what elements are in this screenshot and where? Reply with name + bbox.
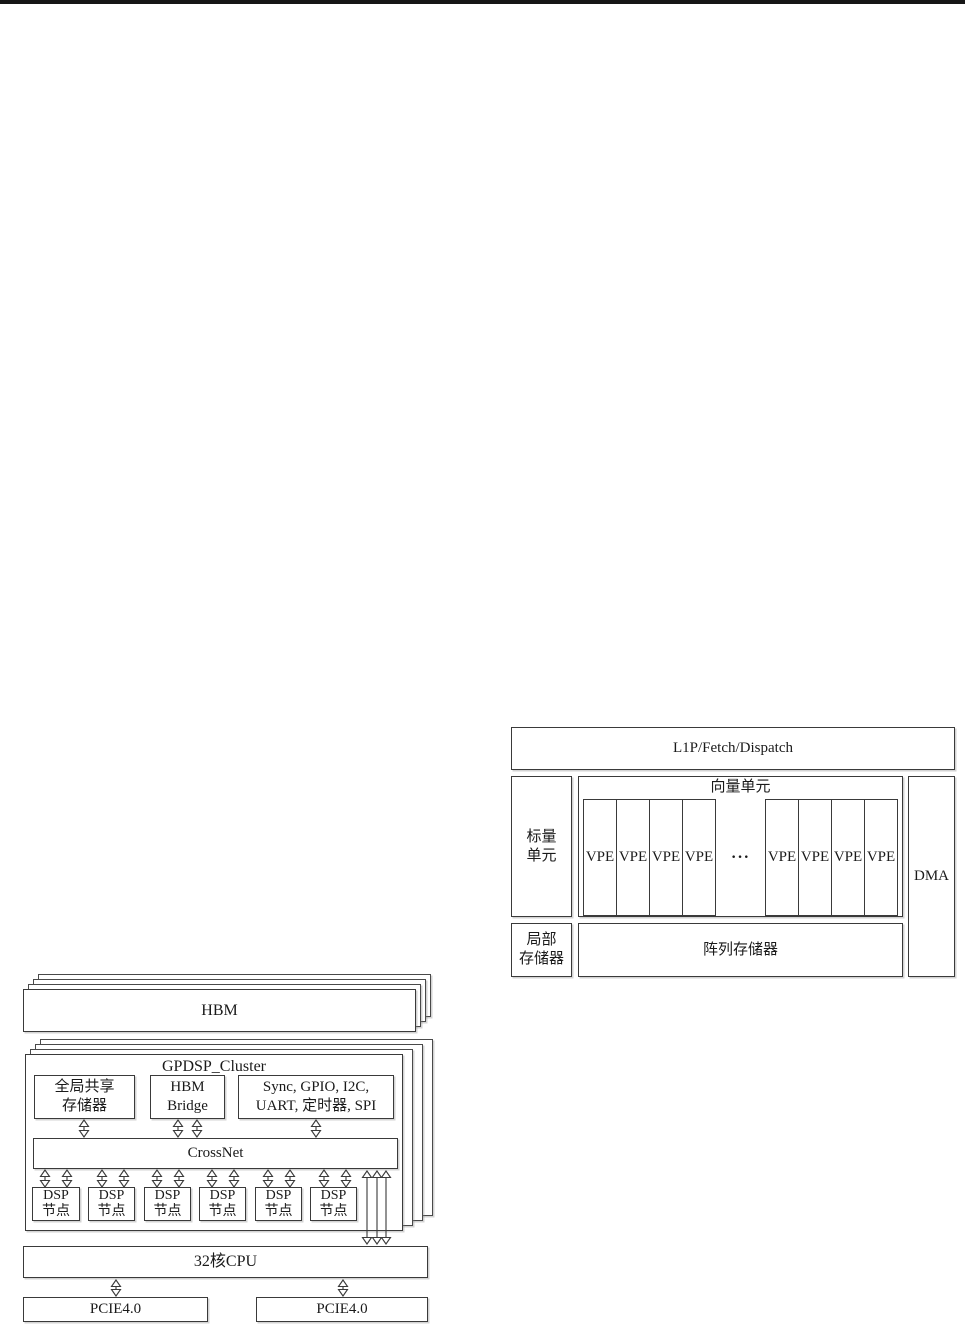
dma-label: DMA	[914, 867, 949, 886]
dsp-node-box: DSP 节点	[255, 1187, 302, 1221]
l1p-label: L1P/Fetch/Dispatch	[673, 739, 793, 758]
local-memory-label-line1: 局部	[526, 931, 556, 950]
hbm-label: HBM	[201, 1001, 237, 1021]
dsp-node-box: DSP 节点	[88, 1187, 135, 1221]
crossnet-box: CrossNet	[33, 1138, 398, 1169]
cpu-box: 32核CPU	[23, 1246, 428, 1278]
vpe-box: VPE	[798, 799, 832, 916]
dsp-node-line1: DSP	[99, 1188, 125, 1204]
hbm-bridge-line1: HBM	[170, 1078, 204, 1097]
scalar-unit-label-line1: 标量	[526, 828, 556, 847]
crossnet-label: CrossNet	[188, 1144, 244, 1163]
dsp-node-line1: DSP	[321, 1188, 347, 1204]
dsp-node-line2: 节点	[265, 1204, 293, 1220]
top-border-bar	[0, 0, 965, 4]
pcie-right-label: PCIE4.0	[316, 1300, 367, 1319]
vpe-group-right: VPE VPE VPE VPE	[765, 799, 898, 916]
dsp-node-line2: 节点	[154, 1204, 182, 1220]
hbm-box: HBM	[23, 989, 416, 1032]
vpe-label: VPE	[685, 849, 713, 866]
vpe-ellipsis: ···	[716, 799, 765, 916]
vpe-label: VPE	[619, 849, 647, 866]
vpe-box: VPE	[682, 799, 716, 916]
global-shared-memory-line1: 全局共享	[54, 1078, 114, 1097]
vpe-box: VPE	[583, 799, 617, 916]
local-memory-label-line2: 存储器	[519, 950, 564, 969]
peripherals-line1: Sync, GPIO, I2C,	[263, 1078, 369, 1097]
vpe-box: VPE	[765, 799, 799, 916]
vpe-box: VPE	[831, 799, 865, 916]
dsp-node-line2: 节点	[98, 1204, 126, 1220]
peripherals-line2: UART, 定时器, SPI	[256, 1097, 377, 1116]
gpdsp-cluster-title: GPDSP_Cluster	[26, 1057, 402, 1077]
dsp-node-line2: 节点	[42, 1204, 70, 1220]
array-memory-box: 阵列存储器	[578, 923, 903, 977]
pcie-left-label: PCIE4.0	[90, 1300, 141, 1319]
dsp-node-line1: DSP	[43, 1188, 69, 1204]
hbm-bridge-box: HBM Bridge	[150, 1075, 225, 1119]
peripherals-box: Sync, GPIO, I2C, UART, 定时器, SPI	[238, 1075, 394, 1119]
l1p-box: L1P/Fetch/Dispatch	[511, 727, 955, 770]
scalar-unit-label-line2: 单元	[526, 847, 556, 866]
vpe-group-left: VPE VPE VPE VPE	[583, 799, 716, 916]
vpe-label: VPE	[867, 849, 895, 866]
hbm-bridge-line2: Bridge	[167, 1097, 208, 1116]
dsp-node-line1: DSP	[210, 1188, 236, 1204]
vpe-box: VPE	[864, 799, 898, 916]
dsp-node-line1: DSP	[266, 1188, 292, 1204]
double-arrow	[339, 1280, 348, 1296]
global-shared-memory-line2: 存储器	[62, 1097, 107, 1116]
double-arrow	[112, 1280, 121, 1296]
pcie-left-box: PCIE4.0	[23, 1297, 208, 1322]
scalar-unit-box: 标量 单元	[511, 776, 572, 917]
local-memory-box: 局部 存储器	[511, 923, 572, 977]
dsp-node-box: DSP 节点	[144, 1187, 191, 1221]
dsp-node-line2: 节点	[209, 1204, 237, 1220]
vpe-label: VPE	[768, 849, 796, 866]
cpu-label: 32核CPU	[194, 1252, 257, 1272]
vpe-box: VPE	[649, 799, 683, 916]
vpe-label: VPE	[834, 849, 862, 866]
dsp-node-line2: 节点	[320, 1204, 348, 1220]
pcie-right-box: PCIE4.0	[256, 1297, 428, 1322]
dma-box: DMA	[908, 776, 955, 977]
vpe-label: VPE	[586, 849, 614, 866]
vpe-box: VPE	[616, 799, 650, 916]
dsp-node-line1: DSP	[155, 1188, 181, 1204]
array-memory-label: 阵列存储器	[703, 941, 778, 960]
figure-canvas: L1P/Fetch/Dispatch 标量 单元 向量单元 VPE VPE VP…	[0, 0, 965, 1330]
vector-unit-label: 向量单元	[579, 778, 902, 797]
dsp-node-box: DSP 节点	[310, 1187, 357, 1221]
global-shared-memory-box: 全局共享 存储器	[34, 1075, 135, 1119]
dsp-node-box: DSP 节点	[199, 1187, 246, 1221]
vpe-label: VPE	[652, 849, 680, 866]
dsp-node-box: DSP 节点	[32, 1187, 80, 1221]
vpe-label: VPE	[801, 849, 829, 866]
